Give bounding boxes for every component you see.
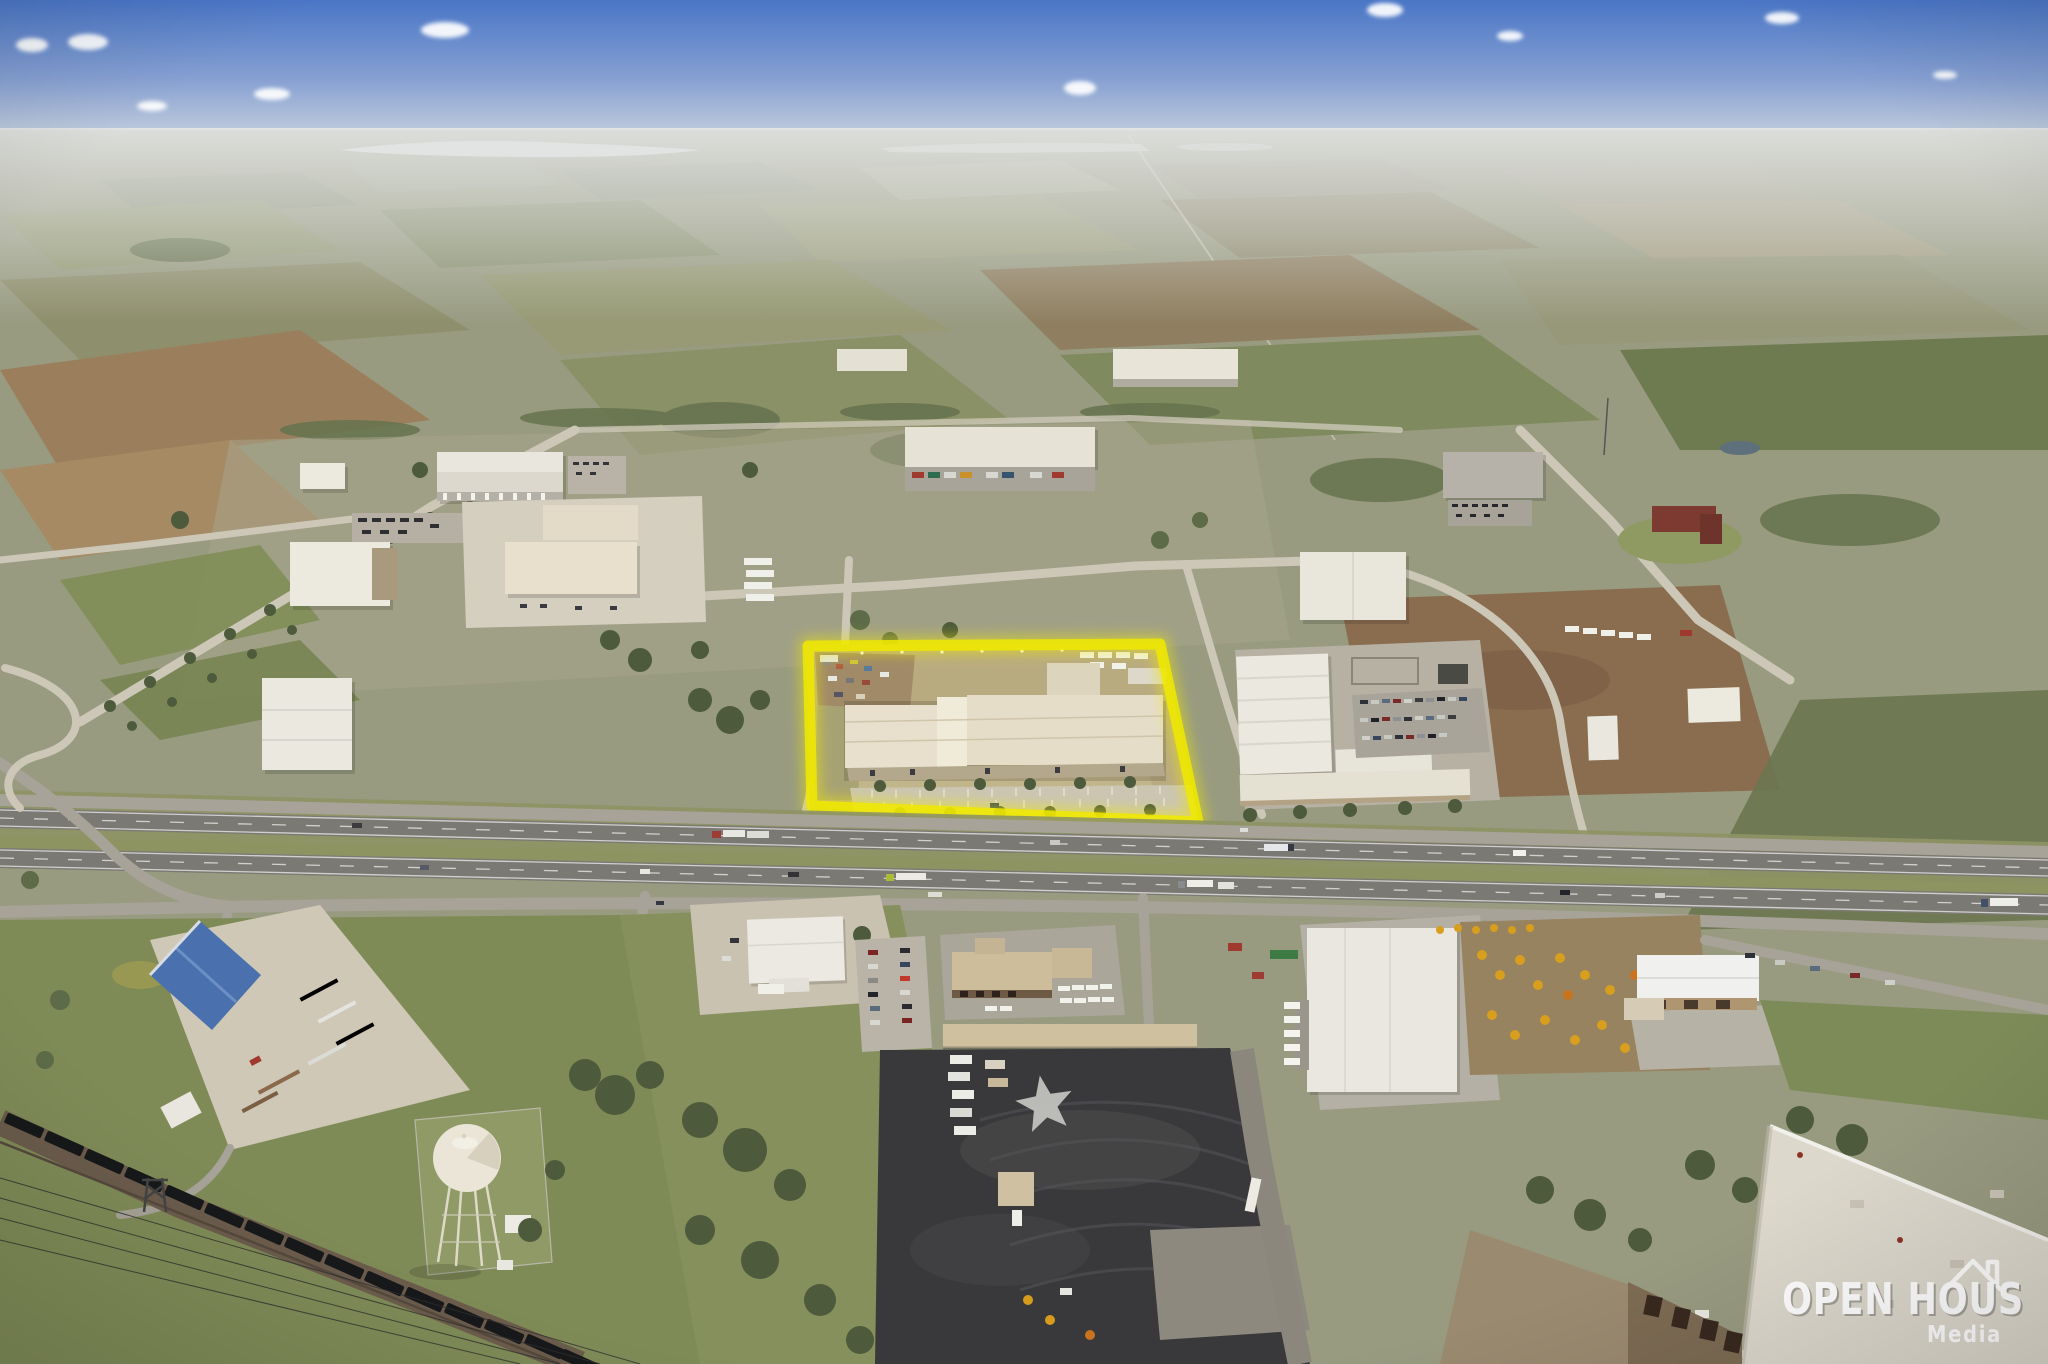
vignette: [0, 0, 2048, 1364]
aerial-photo: OPEN HOUS OPEN HOUS Media: [0, 0, 2048, 1364]
